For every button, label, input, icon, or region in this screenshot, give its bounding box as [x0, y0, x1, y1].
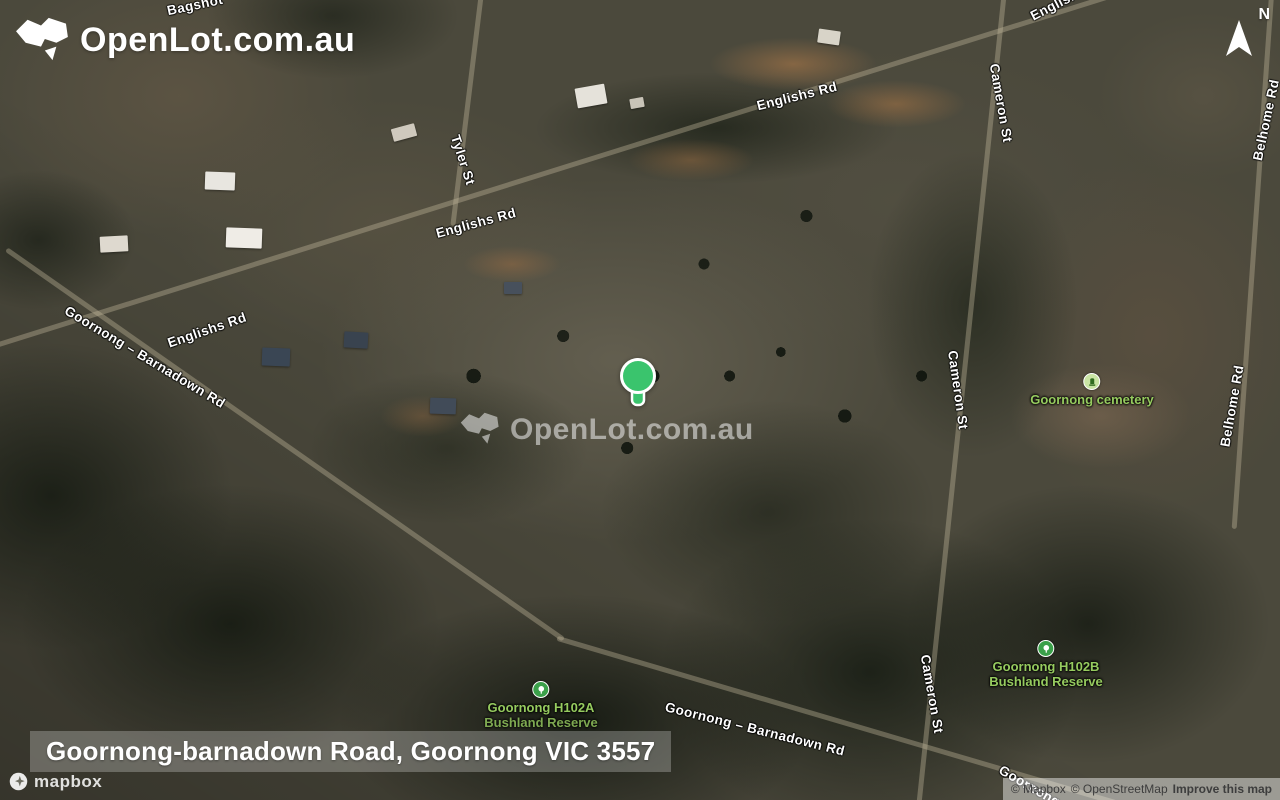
building-footprint: [817, 29, 841, 46]
attribution-improve-link[interactable]: Improve this map: [1173, 782, 1272, 796]
building-footprint: [205, 171, 236, 190]
mapbox-wordmark: mapbox: [34, 772, 102, 792]
compass-north-indicator: N: [1222, 6, 1270, 60]
map-canvas[interactable]: OpenLot.com.au Bagshot Englishs Rd Engli…: [0, 0, 1280, 800]
map-pin[interactable]: [617, 356, 659, 414]
attribution-osm-link[interactable]: © OpenStreetMap: [1071, 782, 1168, 796]
address-banner-text: Goornong-barnadown Road, Goornong VIC 35…: [46, 736, 655, 767]
mapbox-icon: [8, 771, 29, 792]
building-footprint: [504, 282, 522, 294]
building-footprint: [226, 227, 263, 248]
compass-n-label: N: [1258, 6, 1270, 24]
mapbox-logo-link[interactable]: mapbox: [8, 771, 102, 792]
building-footprint: [344, 331, 369, 348]
openlot-logo: OpenLot.com.au: [12, 14, 355, 67]
attribution-mapbox-link[interactable]: © Mapbox: [1011, 782, 1066, 796]
map-attribution: © Mapbox © OpenStreetMap Improve this ma…: [1003, 778, 1280, 800]
openlot-australia-icon: [12, 14, 70, 67]
address-banner: Goornong-barnadown Road, Goornong VIC 35…: [30, 731, 671, 772]
building-footprint: [100, 235, 129, 252]
north-arrow-icon: [1222, 18, 1256, 60]
openlot-logo-text: OpenLot.com.au: [80, 21, 355, 60]
building-footprint: [262, 348, 291, 367]
building-footprint: [430, 398, 457, 415]
